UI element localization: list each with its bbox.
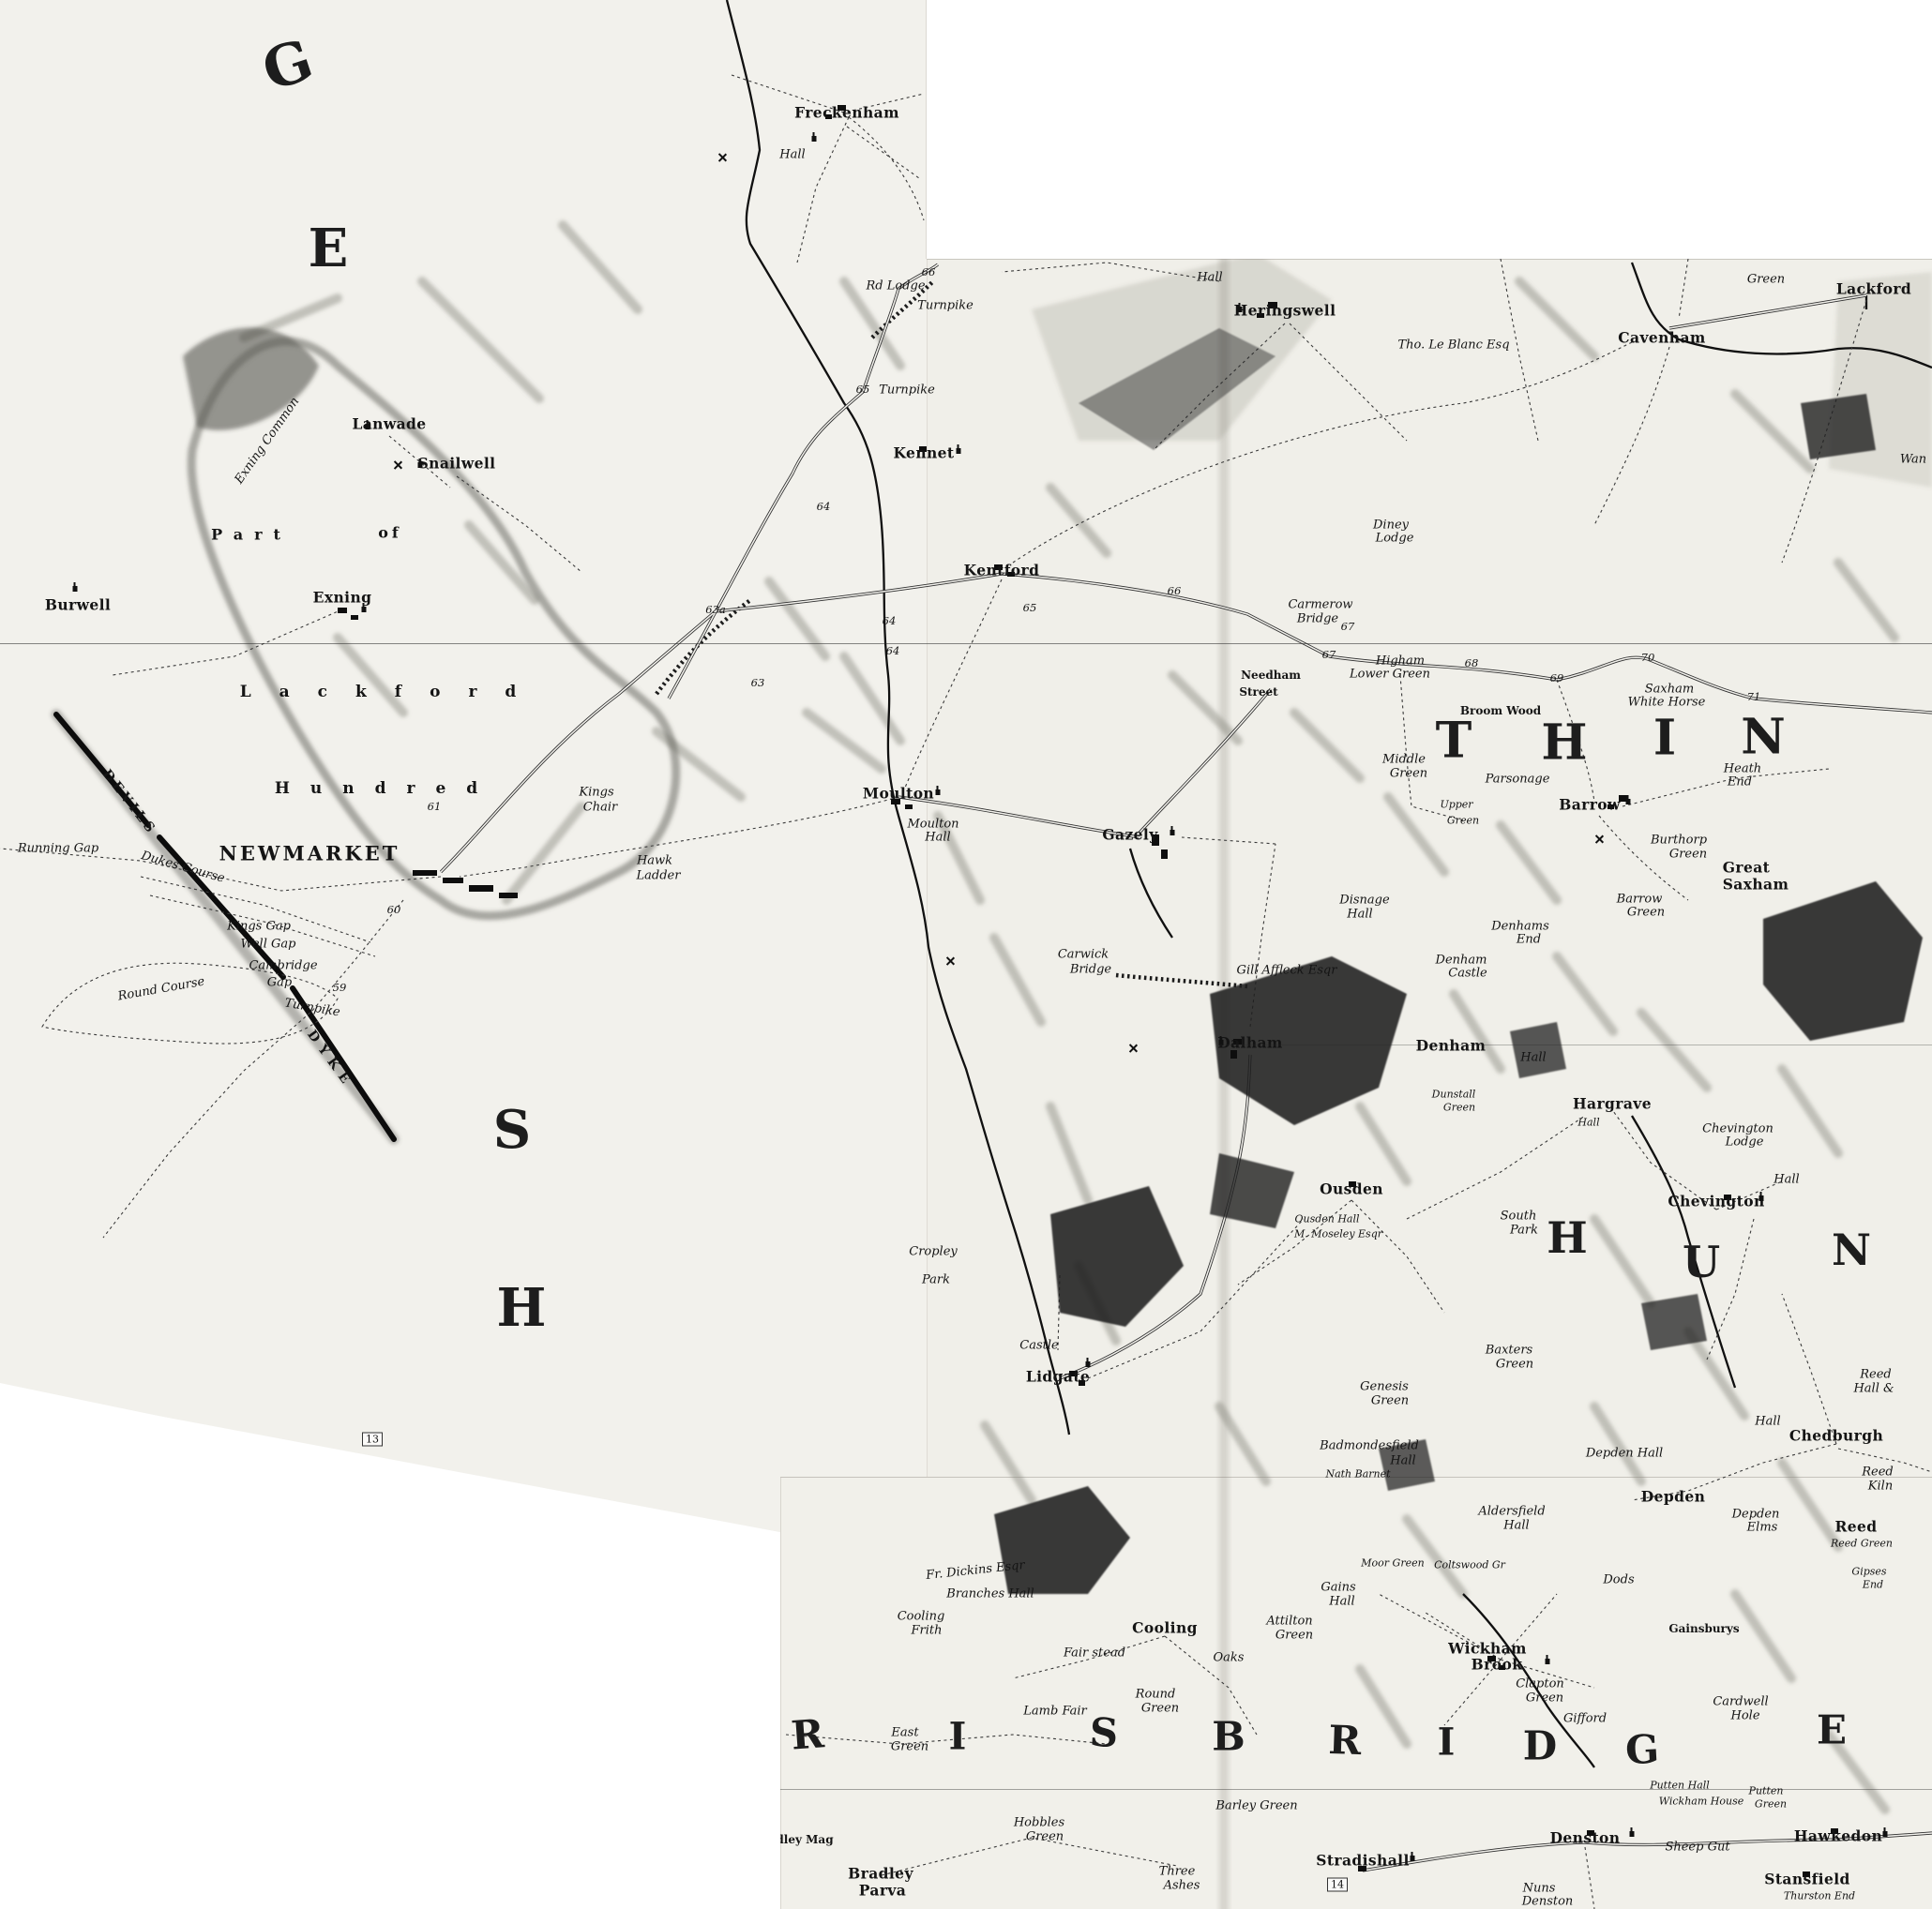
map-label: of xyxy=(378,524,402,542)
map-label: Hundred xyxy=(275,779,498,798)
map-label: Hall xyxy=(1197,271,1222,285)
map-label: Kiln xyxy=(1868,1480,1893,1494)
map-label: Saxham xyxy=(1645,683,1694,697)
map-letter: R xyxy=(1328,1717,1363,1764)
map-label: Denston xyxy=(1522,1895,1574,1909)
map-label: Chair xyxy=(583,801,617,815)
map-label: Kentford xyxy=(964,562,1040,579)
map-label: Lower Green xyxy=(1350,668,1430,682)
map-letter: B xyxy=(1212,1714,1245,1760)
map-label: End xyxy=(1728,775,1752,789)
map-label: Saxham xyxy=(1723,876,1789,894)
map-label: Well Gap xyxy=(241,938,296,952)
map-label: Denhams xyxy=(1491,920,1549,934)
map-canvas: FreckenhamHall66Rd LodgeTurnpike65Turnpi… xyxy=(0,0,1932,1909)
map-label: Hall xyxy=(1755,1415,1780,1429)
map-letter: I xyxy=(949,1715,967,1759)
map-label: Diney xyxy=(1373,519,1409,533)
map-label: Gains xyxy=(1321,1581,1355,1595)
map-letter: E xyxy=(1817,1707,1847,1753)
map-label: Green xyxy=(1526,1691,1563,1706)
map-label: Hole xyxy=(1730,1709,1759,1723)
map-label: Gifford xyxy=(1563,1712,1607,1726)
map-label: Thurston End xyxy=(1784,1890,1855,1902)
map-label: Lanwade xyxy=(352,415,426,433)
map-label: Burthorp xyxy=(1651,834,1707,848)
map-letter: R xyxy=(790,1710,825,1758)
map-label: East xyxy=(891,1726,918,1740)
map-label: Green xyxy=(1443,1102,1475,1114)
map-labels-layer: FreckenhamHall66Rd LodgeTurnpike65Turnpi… xyxy=(0,0,1932,1909)
map-label: 63a xyxy=(705,603,726,616)
map-label: Hall xyxy=(1520,1051,1546,1065)
church-icon xyxy=(418,462,423,468)
map-label: Turnpike xyxy=(283,996,340,1019)
sheet-number-badge: 13 xyxy=(362,1433,383,1447)
map-label: Aldersfield xyxy=(1478,1505,1545,1519)
map-label: Barley Green xyxy=(1215,1799,1297,1813)
map-letter: E xyxy=(309,218,349,279)
map-letter: D xyxy=(1523,1723,1557,1769)
map-letter: H xyxy=(1547,1212,1587,1263)
map-label: End xyxy=(1517,933,1541,947)
map-label: Lidgate xyxy=(1026,1368,1090,1386)
map-label: Moulton xyxy=(863,785,934,803)
map-label: 65 xyxy=(1023,601,1037,614)
map-label: Denham xyxy=(1436,954,1487,968)
map-label: 66 xyxy=(1168,584,1182,597)
church-icon xyxy=(1626,799,1631,804)
map-label: Castle xyxy=(1448,967,1487,981)
map-letter: U xyxy=(1683,1237,1720,1287)
map-label: Ladder xyxy=(637,869,681,883)
church-icon xyxy=(1630,1831,1635,1837)
map-label: Moor Green xyxy=(1361,1557,1424,1570)
map-label: Lackford xyxy=(1836,280,1911,298)
church-icon xyxy=(73,586,78,592)
map-label: Bridge xyxy=(1297,612,1338,626)
map-label: Reed xyxy=(1860,1368,1892,1382)
map-label: Dods xyxy=(1603,1573,1634,1587)
map-label: Hawk xyxy=(637,854,672,868)
map-label: Cardwell xyxy=(1713,1695,1768,1709)
map-label: Barrow xyxy=(1617,893,1663,907)
map-label: Nuns xyxy=(1523,1882,1556,1896)
map-label: 71 xyxy=(1747,690,1761,703)
church-icon xyxy=(812,136,817,142)
map-label: dley Mag xyxy=(776,1833,833,1846)
map-label: Elms xyxy=(1747,1521,1778,1535)
map-letter: S xyxy=(493,1099,531,1161)
church-icon xyxy=(362,607,367,612)
map-label: Broom Wood xyxy=(1460,704,1541,717)
map-label: Chedburgh xyxy=(1789,1427,1883,1445)
map-label: Chevington xyxy=(1702,1122,1774,1136)
map-label: Dunstall xyxy=(1432,1089,1476,1101)
map-label: Dukes Course xyxy=(140,849,226,886)
map-label: 69 xyxy=(1550,671,1564,684)
map-label: Fr. Dickins Esqr xyxy=(926,1558,1026,1583)
map-label: Hall xyxy=(1390,1454,1415,1468)
map-label: Heringswell xyxy=(1234,302,1336,320)
map-label: 67 xyxy=(1322,648,1336,661)
map-label: Bridge xyxy=(1070,963,1111,977)
map-label: 68 xyxy=(1465,656,1479,669)
map-label: Carmerow xyxy=(1288,598,1352,612)
map-label: 63 xyxy=(751,676,765,689)
map-label: Burwell xyxy=(45,596,111,614)
windmill-icon xyxy=(1128,1044,1139,1054)
map-label: Green xyxy=(1447,815,1479,827)
map-label: Rd Lodge xyxy=(866,279,925,293)
map-label: Three xyxy=(1159,1865,1196,1879)
map-label: Depden Hall xyxy=(1586,1447,1663,1461)
map-label: Fair stead xyxy=(1064,1646,1125,1661)
map-label: 61 xyxy=(428,800,442,813)
map-label: Clapton xyxy=(1516,1677,1564,1691)
map-label: Badmondesfield xyxy=(1320,1439,1419,1453)
map-label: Street xyxy=(1239,685,1277,699)
map-label: Cooling xyxy=(1132,1619,1198,1637)
map-label: Green xyxy=(1627,906,1665,920)
church-icon xyxy=(936,789,941,795)
map-label: Gap xyxy=(267,976,292,990)
map-label: Lamb Fair xyxy=(1023,1705,1086,1719)
map-label: Park xyxy=(1510,1224,1538,1238)
map-label: Lodge xyxy=(1376,532,1414,546)
map-label: Parsonage xyxy=(1486,773,1550,787)
map-label: Depden xyxy=(1732,1508,1780,1522)
map-label: White Horse xyxy=(1628,696,1706,710)
map-label: Green xyxy=(1496,1358,1533,1372)
map-label: Ousden xyxy=(1320,1180,1383,1198)
church-icon xyxy=(1238,307,1243,312)
map-letter: G xyxy=(1624,1726,1660,1774)
map-label: Hall xyxy=(779,148,805,162)
map-label: Denham xyxy=(1416,1037,1487,1055)
map-label: Hall xyxy=(1774,1173,1799,1187)
map-label: Park xyxy=(922,1273,950,1287)
map-label: Chevington xyxy=(1668,1193,1764,1210)
map-label: Green xyxy=(1026,1830,1064,1844)
windmill-icon xyxy=(393,460,403,471)
map-label: Running Gap xyxy=(18,842,98,856)
map-label: Green xyxy=(1371,1394,1409,1408)
map-letter: I xyxy=(1438,1721,1456,1765)
map-label: Turnpike xyxy=(879,383,935,398)
map-label: Gainsburys xyxy=(1668,1622,1739,1635)
map-label: Gill Affleck Esqr xyxy=(1237,964,1337,978)
map-label: Green xyxy=(891,1740,928,1754)
map-label: 70 xyxy=(1641,651,1655,664)
map-letter: T xyxy=(1436,713,1472,770)
map-label: Ousden Hall xyxy=(1294,1213,1359,1225)
map-label: Tho. Le Blanc Esq xyxy=(1397,338,1509,353)
map-label: Coltswood Gr xyxy=(1434,1559,1505,1571)
map-letter: I xyxy=(1653,710,1676,767)
map-label: Green xyxy=(1755,1798,1787,1811)
map-label: Turnpike xyxy=(917,299,974,313)
map-label: Round xyxy=(1136,1688,1176,1702)
map-label: Middle xyxy=(1382,753,1426,767)
church-icon xyxy=(1219,1040,1224,1045)
map-label: Kings Gap xyxy=(227,920,291,934)
map-label: Hall xyxy=(925,831,950,845)
map-label: M. Moseley Esqr xyxy=(1294,1228,1382,1240)
map-letter: N xyxy=(1832,1225,1871,1275)
map-label: Moulton xyxy=(907,818,958,832)
map-label: NEWMARKET xyxy=(219,842,400,865)
map-label: Hall xyxy=(1347,908,1372,922)
map-label: Sheep Gut xyxy=(1665,1841,1729,1855)
windmill-icon xyxy=(945,956,956,967)
map-label: South xyxy=(1501,1210,1537,1224)
map-label: Putten Hall xyxy=(1650,1780,1710,1792)
map-label: Green xyxy=(1275,1629,1313,1643)
map-label: Lodge xyxy=(1726,1135,1764,1150)
map-label: Hobbles xyxy=(1014,1816,1064,1830)
map-label: Snailwell xyxy=(418,455,496,473)
map-label: Parva xyxy=(859,1882,907,1900)
church-icon xyxy=(1086,1361,1091,1367)
map-letter: S xyxy=(1089,1709,1120,1757)
windmill-icon xyxy=(1594,834,1605,845)
map-label: Cropley xyxy=(909,1245,958,1259)
church-icon xyxy=(957,448,961,454)
map-label: Wickham House xyxy=(1659,1796,1743,1808)
church-icon xyxy=(1546,1659,1550,1664)
sheet-number-badge: 14 xyxy=(1327,1878,1348,1892)
map-label: End xyxy=(1863,1579,1883,1591)
windmill-icon xyxy=(717,153,728,163)
map-label: Disnage xyxy=(1339,894,1389,908)
map-label: 64 xyxy=(883,614,897,627)
map-label: Brook xyxy=(1472,1656,1523,1674)
map-label: Needham xyxy=(1241,669,1301,682)
map-label: Hall & xyxy=(1853,1382,1894,1396)
map-label: Cavenham xyxy=(1618,329,1705,347)
map-label: Bradley xyxy=(848,1865,913,1883)
map-label: Stansfield xyxy=(1764,1871,1850,1888)
map-label: Green xyxy=(1390,767,1427,781)
map-label: Attilton xyxy=(1266,1615,1312,1629)
map-label: Carwick xyxy=(1058,948,1109,962)
map-label: Baxters xyxy=(1486,1344,1532,1358)
map-label: Gipses xyxy=(1851,1566,1886,1578)
map-label: Reed Green xyxy=(1831,1538,1893,1550)
map-label: Barrow xyxy=(1559,796,1621,814)
map-label: Hall xyxy=(1329,1595,1354,1609)
map-label: Hall xyxy=(1577,1117,1599,1129)
map-label: Oaks xyxy=(1214,1651,1245,1665)
map-label: Exning Common xyxy=(233,395,303,487)
map-letter: H xyxy=(497,1277,547,1339)
map-label: Part xyxy=(211,526,292,544)
map-label: 66 xyxy=(922,265,936,278)
map-label: Wan xyxy=(1900,453,1926,467)
church-icon xyxy=(1759,1195,1764,1201)
map-label: Reed xyxy=(1862,1466,1894,1480)
map-label: 65 xyxy=(856,383,870,396)
map-letter: H xyxy=(1541,714,1587,772)
map-label: DEVILS xyxy=(99,767,159,838)
map-label: Castle xyxy=(1019,1339,1058,1353)
map-label: 64 xyxy=(886,644,900,657)
map-label: Reed xyxy=(1834,1518,1877,1536)
map-label: Denston xyxy=(1550,1829,1621,1847)
map-label: Upper xyxy=(1440,799,1472,811)
map-label: Green xyxy=(1747,273,1785,287)
map-label: 64 xyxy=(817,500,831,513)
church-icon xyxy=(1411,1856,1415,1861)
map-label: 67 xyxy=(1341,620,1355,633)
map-letter: N xyxy=(1741,709,1786,766)
map-label: Gazely xyxy=(1102,826,1157,844)
map-label: Cambridge xyxy=(249,959,317,973)
map-label: Putten xyxy=(1749,1785,1784,1797)
map-letter: G xyxy=(255,27,321,104)
church-icon xyxy=(1170,830,1175,835)
map-label: DYKE xyxy=(304,1028,356,1091)
map-label: Dalham xyxy=(1217,1034,1283,1052)
map-label: 60 xyxy=(387,903,401,916)
map-label: 59 xyxy=(333,981,347,994)
map-label: Freckenham xyxy=(794,104,899,122)
map-label: Green xyxy=(1141,1702,1179,1716)
church-icon xyxy=(1883,1831,1888,1837)
map-label: Branches Hall xyxy=(946,1587,1034,1601)
map-label: Nath Barnet xyxy=(1325,1468,1390,1481)
church-icon xyxy=(366,424,370,429)
map-label: Kennet xyxy=(894,444,955,462)
map-label: Lackford xyxy=(240,683,545,701)
map-label: Round Course xyxy=(117,974,206,1003)
map-label: Green xyxy=(1669,848,1707,862)
map-label: Hall xyxy=(1503,1519,1529,1533)
map-label: Stradishall xyxy=(1316,1852,1410,1870)
map-label: Ashes xyxy=(1164,1879,1200,1893)
map-label: Higham xyxy=(1376,654,1425,669)
map-label: Genesis xyxy=(1360,1380,1409,1394)
map-label: Depden xyxy=(1641,1488,1706,1506)
map-label: Hawkedon xyxy=(1794,1827,1882,1845)
map-label: Kings xyxy=(579,786,613,800)
map-label: Hargrave xyxy=(1573,1095,1652,1113)
map-label: Frith xyxy=(912,1624,943,1638)
map-label: Cooling xyxy=(898,1610,945,1624)
map-label: Great xyxy=(1723,859,1770,877)
